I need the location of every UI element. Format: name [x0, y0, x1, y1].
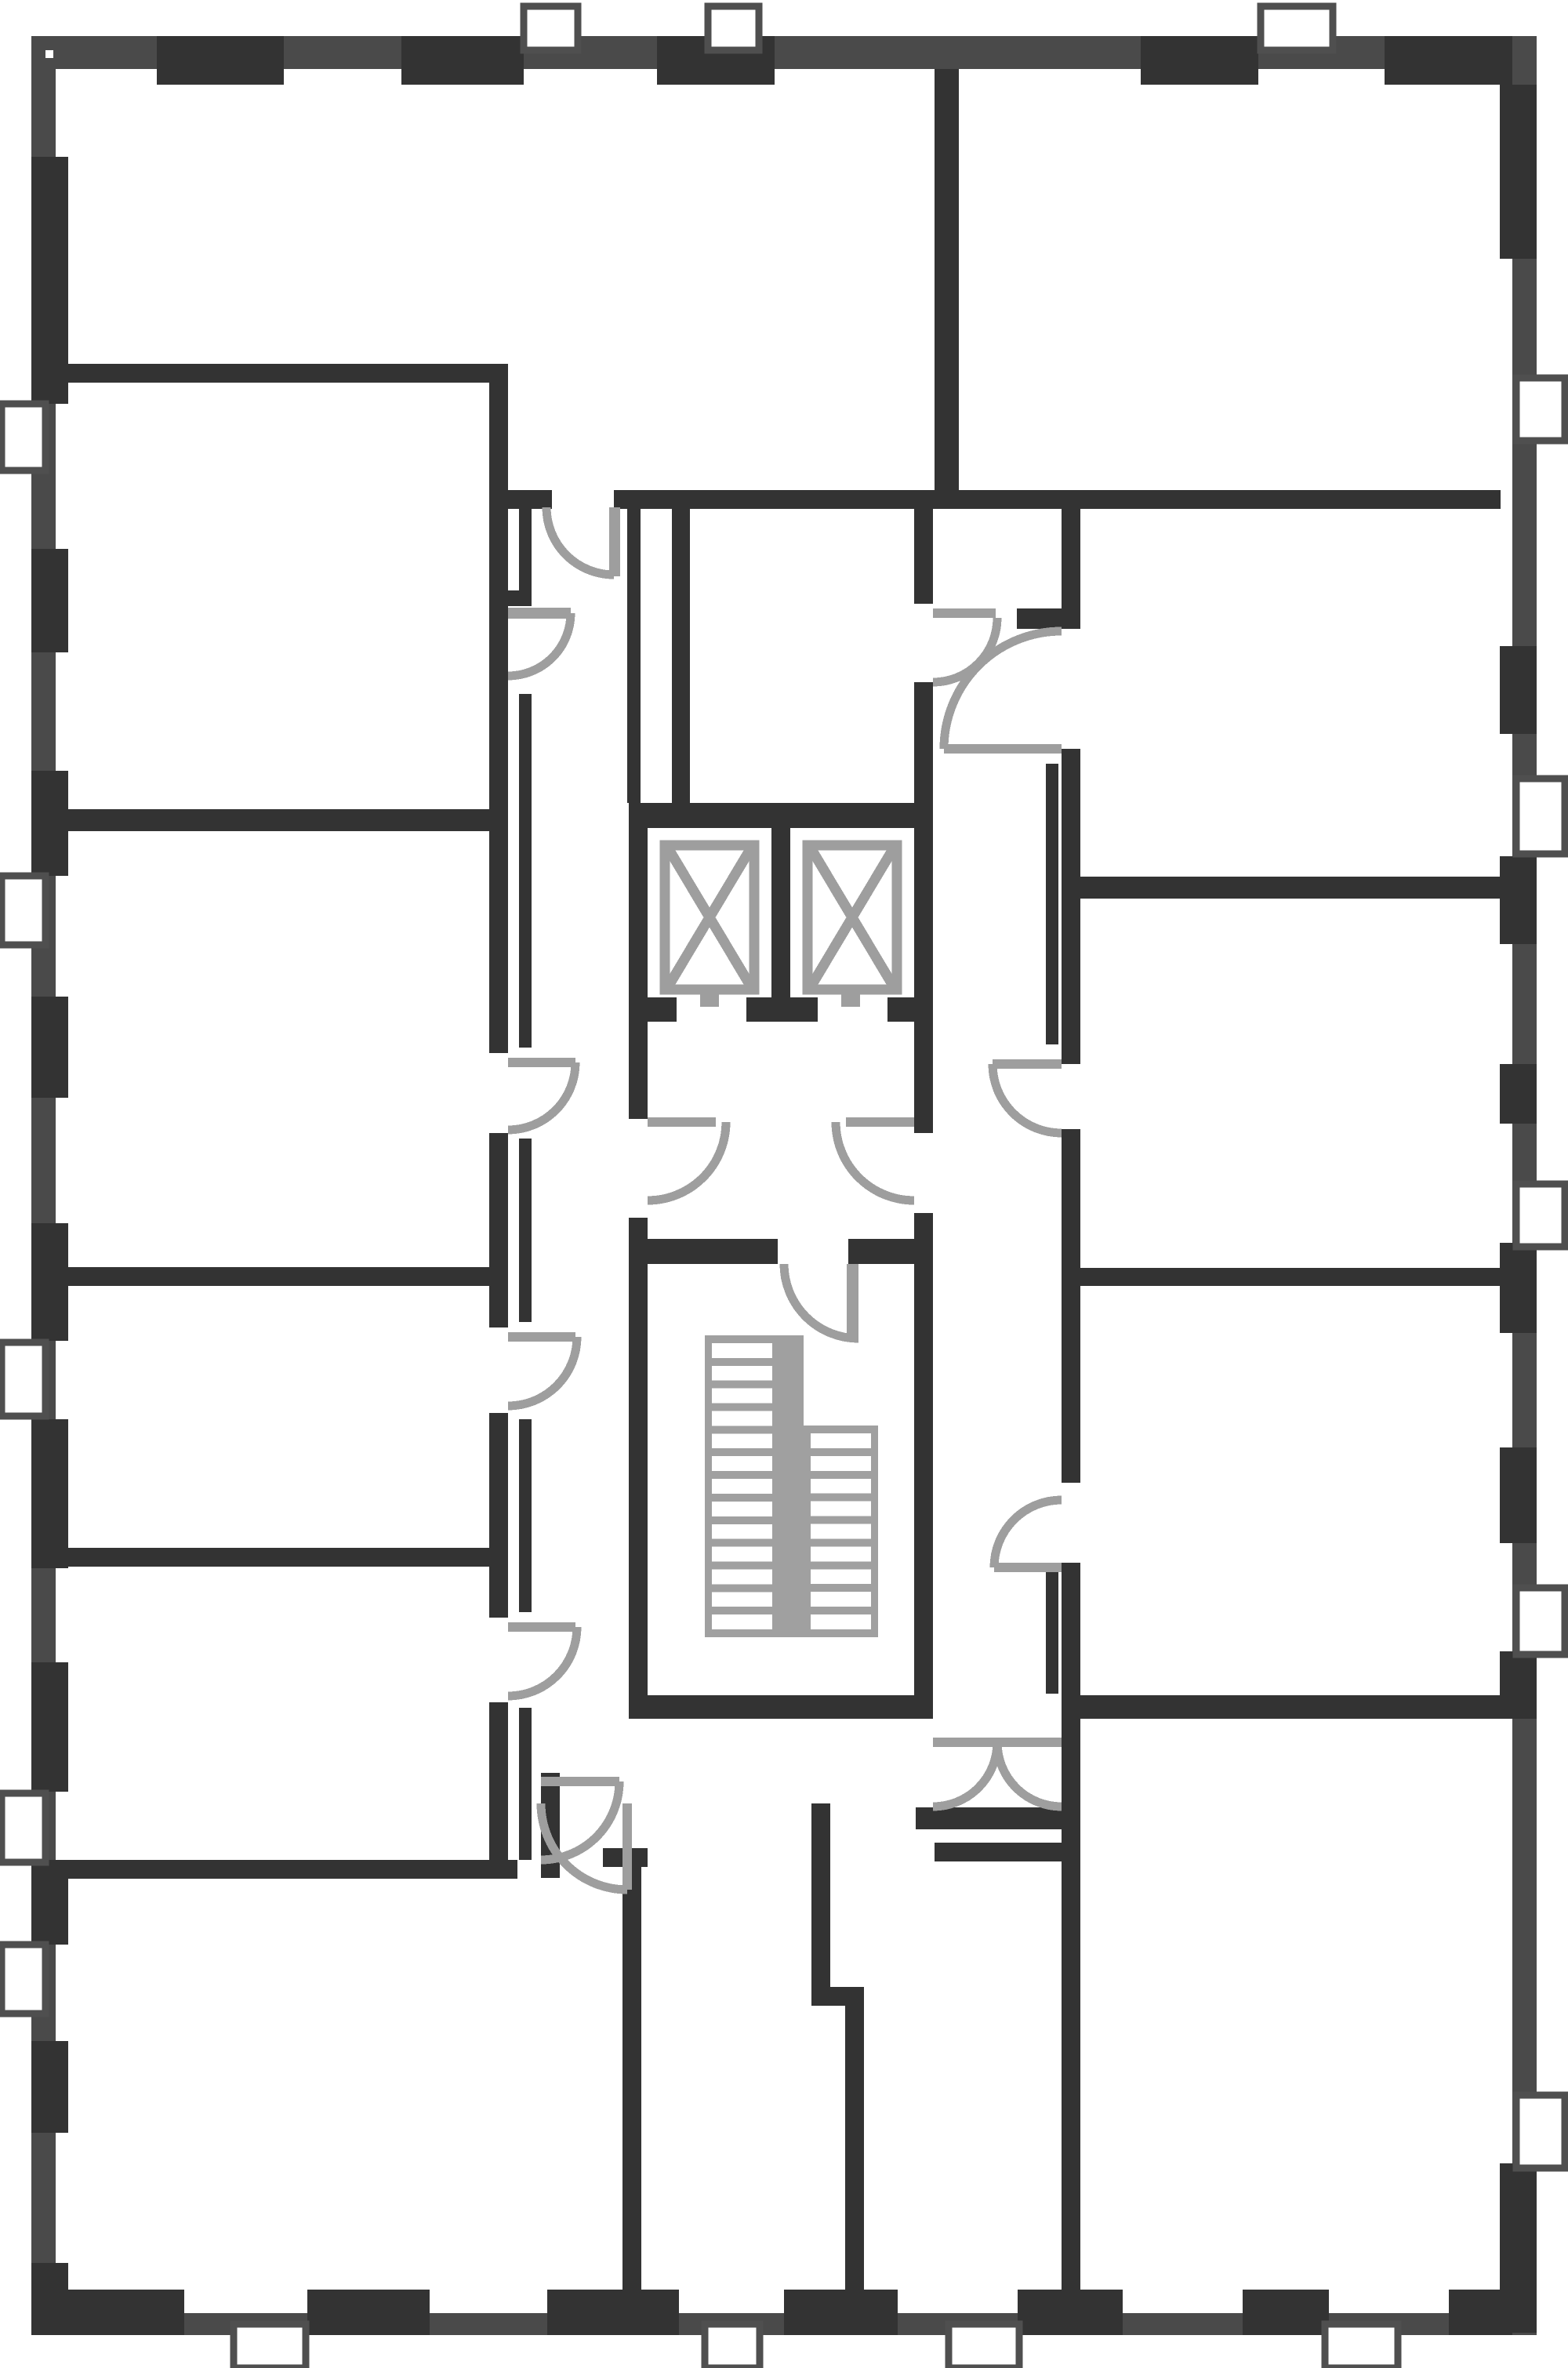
door-swing-arc [933, 618, 997, 682]
stair-tread [811, 1569, 871, 1584]
window-marker-icon [2, 404, 45, 470]
door-leaf [541, 1777, 619, 1786]
wall-segment [31, 1267, 508, 1286]
wall-segment [31, 364, 508, 383]
door-leaf [933, 1738, 997, 1747]
door-leaf [846, 1117, 914, 1127]
stair-tread [811, 1614, 871, 1629]
exterior-wall-dark-segment [31, 549, 68, 652]
stair-tread [712, 1389, 772, 1404]
stair-tread [811, 1456, 871, 1471]
door-swing-arc [546, 507, 614, 575]
door-lobby-right [836, 1117, 914, 1200]
window-marker-icon [1325, 2324, 1398, 2368]
door-leaf [847, 1264, 858, 1338]
wall-segment [1062, 877, 1512, 899]
stair-tread [712, 1614, 772, 1629]
door-leaf [508, 608, 571, 619]
door-right-room-2 [993, 1059, 1062, 1133]
door-swing-arc [997, 1742, 1062, 1807]
wall-segment [914, 509, 933, 604]
stair-spine [779, 1335, 804, 1637]
door-swing-arc [508, 1062, 575, 1130]
elevator-door-tab [841, 990, 860, 1007]
window-marker-icon [2, 1793, 45, 1862]
door-leaf [609, 507, 620, 576]
elevator-door-tab [700, 990, 719, 1007]
window-marker-icon [1516, 1588, 1565, 1654]
door-swing-arc [648, 1122, 726, 1200]
wall-segment [489, 364, 508, 1053]
window-marker-icon [1516, 2095, 1565, 2168]
door-swing-arc [994, 1500, 1062, 1567]
door-lobby-left [648, 1117, 726, 1200]
stair-tread [811, 1592, 871, 1607]
window-marker-icon [705, 2324, 760, 2368]
wall-segment [1062, 1563, 1080, 2317]
stair-tread [712, 1524, 772, 1539]
wall-segment [914, 682, 933, 803]
wall-segment [627, 509, 641, 803]
door-leaf [648, 1117, 716, 1127]
stair-tread [811, 1433, 871, 1448]
door-leaf [944, 744, 1062, 754]
floor-plan-canvas [0, 0, 1568, 2368]
corner-notch [45, 50, 53, 58]
door-right-room-3 [994, 1500, 1062, 1572]
window-marker-icon [949, 2324, 1019, 2368]
door-swing-arc [944, 631, 1062, 749]
wall-segment [489, 1702, 508, 1879]
exterior-wall-dark-segment [31, 997, 68, 1098]
exterior-wall-dark-segment [1500, 646, 1537, 734]
exterior-wall-dark-segment [1500, 1064, 1537, 1124]
exterior-wall-dark-segment [157, 36, 284, 85]
stair-tread [712, 1343, 772, 1358]
stair-tread [811, 1546, 871, 1561]
exterior-wall-dark-segment [784, 2290, 898, 2335]
exterior-wall-dark-segment [547, 2290, 679, 2335]
door-swing-arc [508, 1627, 577, 1696]
wall-segment [508, 590, 532, 606]
window-marker-icon [2, 876, 45, 945]
exterior-wall-dark-segment [31, 1662, 68, 1792]
wall-segment [916, 1807, 1080, 1829]
wall-segment [914, 1022, 933, 1133]
door-swing-arc [508, 613, 571, 676]
wall-segment [629, 1695, 933, 1719]
exterior-wall-dark-segment [31, 2041, 68, 2133]
wall-segment [1062, 1129, 1080, 1483]
exterior-wall-dark-segment [1500, 1243, 1537, 1333]
window-marker-icon [708, 6, 759, 50]
wall-segment [1062, 509, 1080, 629]
door-leaf [508, 1332, 575, 1342]
interior-walls [31, 50, 1512, 2317]
wall-segment [614, 490, 1501, 509]
stair-tread [712, 1592, 772, 1607]
door-corridor-left-top [508, 608, 571, 676]
door-swing-arc [836, 1122, 914, 1200]
door-leaf [508, 1058, 575, 1067]
stair-tread [712, 1433, 772, 1448]
stair-tread [712, 1366, 772, 1381]
door-left-room-2 [508, 1058, 575, 1130]
wall-segment [31, 1860, 517, 1879]
wall-segment [31, 1548, 508, 1567]
door-swings [508, 507, 1062, 1890]
exterior-wall-dark-segment [1243, 2290, 1329, 2335]
wall-segment [629, 803, 648, 1022]
thin-wall-segment [519, 507, 532, 590]
wall-segment [845, 1987, 864, 2306]
window-marker-icon [1516, 1184, 1565, 1247]
window-marker-icon [2, 1342, 45, 1416]
wall-segment [489, 1133, 508, 1327]
exterior-wall-dark-segment [1500, 1447, 1537, 1543]
window-marker-icon [524, 6, 578, 50]
exterior-wall-dark-segment [31, 1419, 68, 1568]
wall-segment [629, 1218, 648, 1719]
thin-wall-segment [1046, 1568, 1058, 1694]
door-leaf [993, 1059, 1062, 1069]
exterior-wall-dark-segment [1500, 85, 1537, 259]
door-junction-right-b [997, 1738, 1062, 1807]
door-leaf [997, 1738, 1062, 1747]
wall-segment [811, 1803, 830, 2006]
window-marker-icon [234, 2324, 306, 2368]
door-left-room-3 [508, 1332, 577, 1406]
stair-tread [811, 1502, 871, 1516]
window-marker-icon [1516, 779, 1565, 854]
stair-tread [712, 1569, 772, 1584]
elevator-right [808, 845, 897, 1007]
wall-segment [914, 1213, 933, 1719]
wall-segment [629, 803, 933, 828]
door-right-room-1 [944, 631, 1062, 754]
wall-segment [771, 828, 790, 997]
door-leaf [508, 1622, 575, 1632]
door-leaf [994, 1563, 1062, 1572]
exterior-wall-dark-segment [1500, 2163, 1537, 2333]
wall-segment [746, 997, 818, 1022]
window-marker-icon [2, 1945, 45, 2014]
wall-segment [1062, 1695, 1512, 1719]
thin-wall-segment [519, 1708, 532, 1860]
door-staircase [784, 1264, 858, 1338]
wall-segment [31, 809, 508, 831]
door-swing-arc [508, 1337, 577, 1406]
stair-tread [712, 1456, 772, 1471]
stair-tread [811, 1524, 871, 1539]
floor-plan [0, 0, 1568, 2368]
door-junction-right-a [933, 1738, 997, 1807]
thin-wall-segment [519, 1139, 532, 1322]
stair-tread [712, 1411, 772, 1426]
stair-tread [712, 1502, 772, 1516]
elevator-left [665, 845, 754, 1007]
wall-segment [914, 803, 933, 1022]
wall-segment [629, 1022, 648, 1119]
exterior-wall-dark-segment [1141, 36, 1258, 85]
wall-segment [629, 1239, 778, 1264]
door-swing-arc [933, 1742, 997, 1807]
wall-segment [672, 509, 690, 803]
staircase [705, 1335, 878, 1637]
thin-wall-segment [519, 694, 532, 1048]
thin-wall-segment [519, 1419, 532, 1612]
stair-tread [712, 1547, 772, 1562]
window-marker-icon [1516, 378, 1565, 441]
door-swing-arc [993, 1064, 1062, 1133]
exterior-wall-dark-segment [31, 2263, 68, 2335]
door-top-middle-room [546, 507, 620, 576]
door-left-room-4 [508, 1622, 577, 1696]
wall-segment [1062, 749, 1080, 1064]
window-markers [2, 6, 1565, 2368]
stair-tread [811, 1479, 871, 1494]
exterior-wall-dark-segment [1500, 856, 1537, 944]
wall-segment [622, 1848, 641, 2306]
door-leaf [933, 608, 996, 618]
wall-segment [1062, 1268, 1512, 1286]
wall-segment [489, 1413, 508, 1618]
stair-tread [712, 1479, 772, 1494]
window-marker-icon [1261, 6, 1333, 50]
wall-segment [1017, 608, 1062, 629]
door-upper-hall [933, 608, 997, 682]
door-leaf [622, 1803, 632, 1890]
wall-segment [935, 1843, 1080, 1861]
exterior-wall-dark-segment [307, 2290, 430, 2335]
exterior-wall-dark-segment [401, 36, 524, 85]
thin-wall-segment [1046, 764, 1058, 1044]
wall-segment [935, 69, 959, 509]
